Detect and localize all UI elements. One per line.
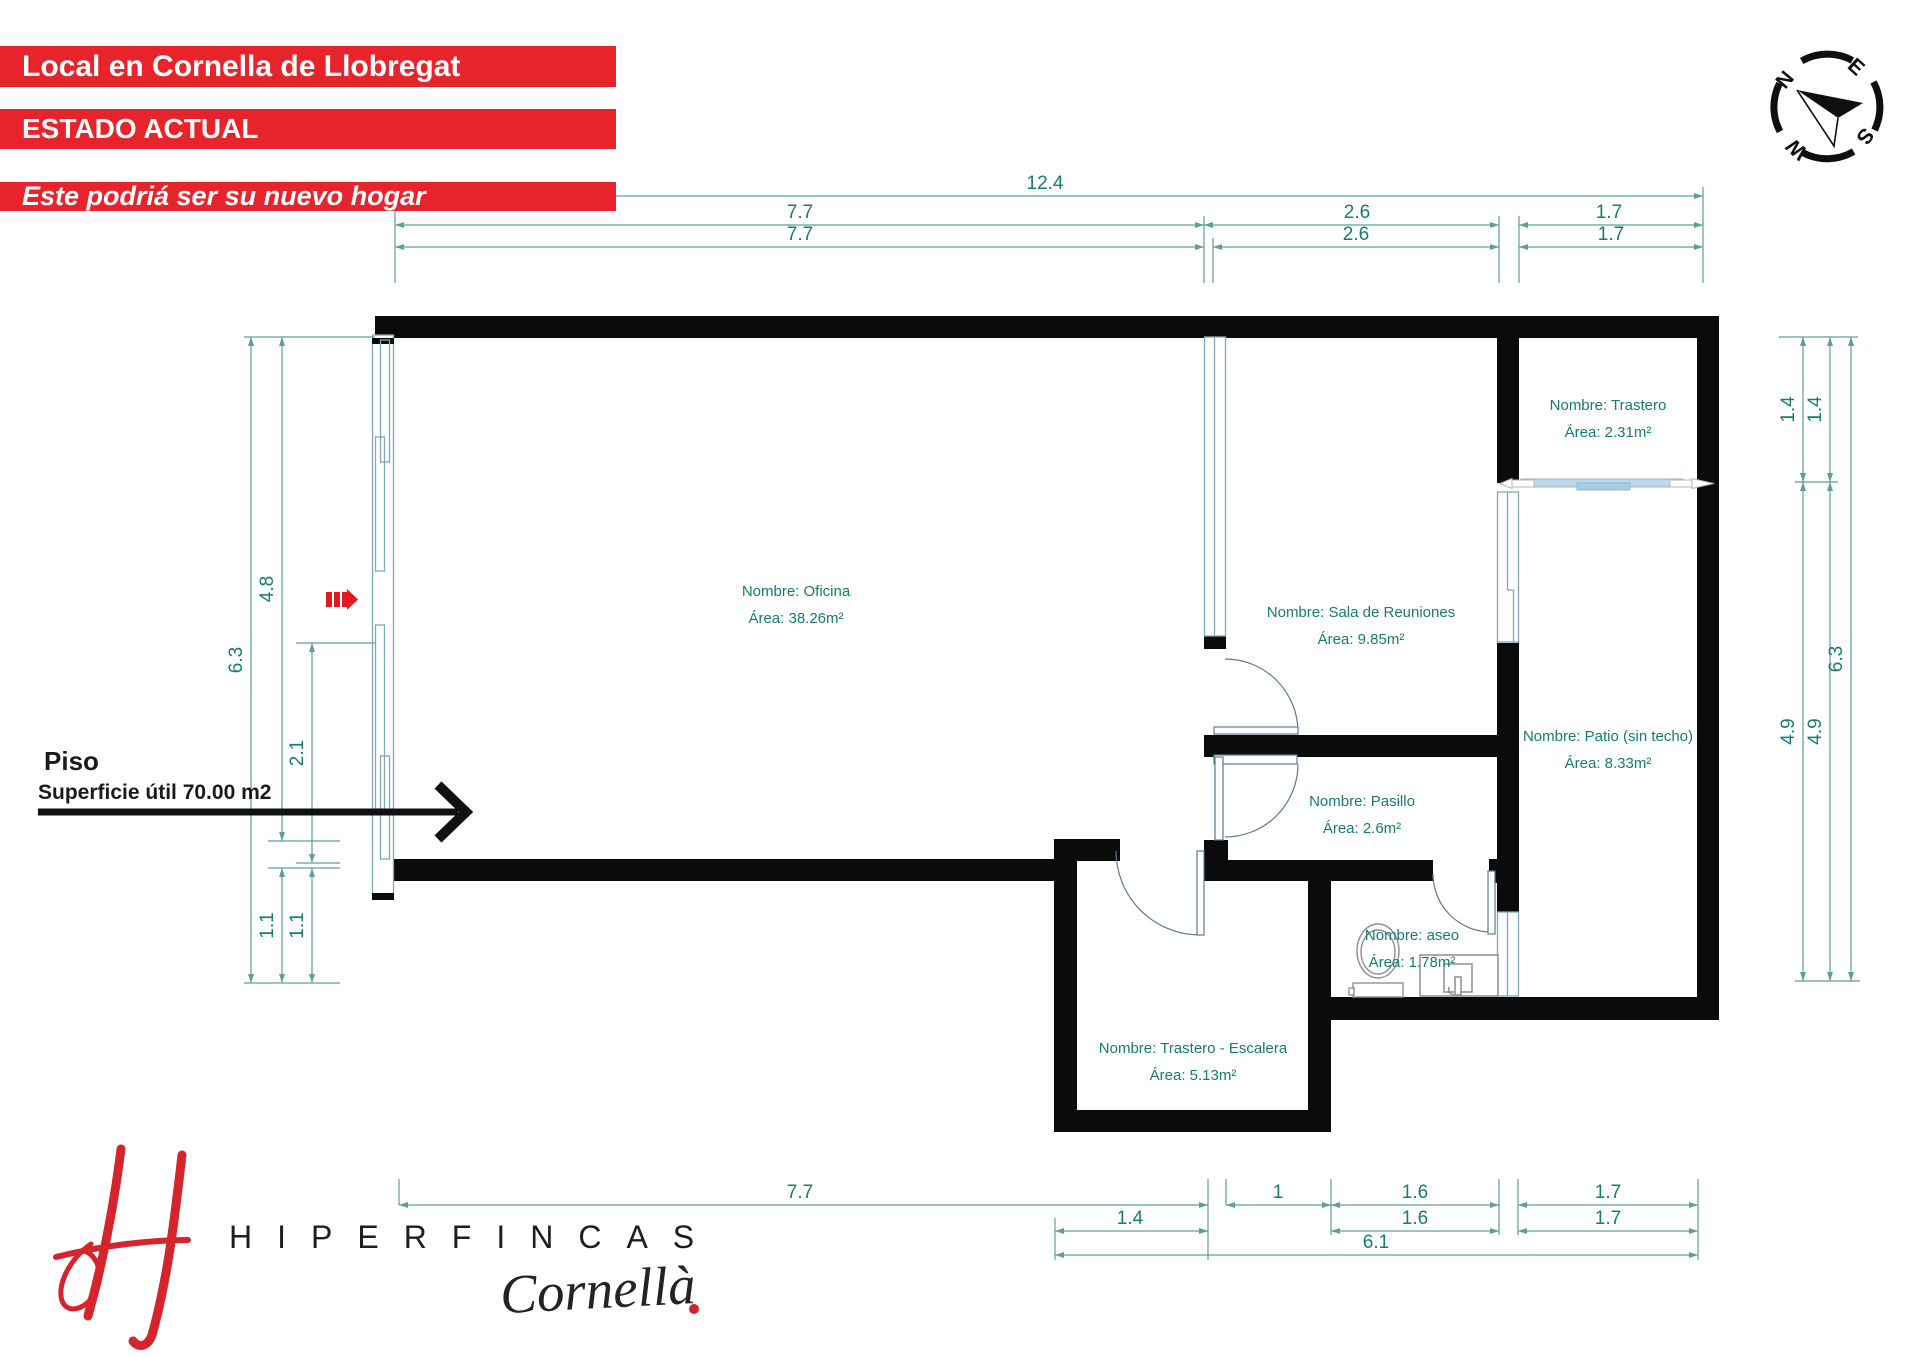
svg-text:7.7: 7.7 <box>787 202 813 223</box>
svg-text:Área: 1.78m²: Área: 1.78m² <box>1369 954 1456 971</box>
svg-text:4.9: 4.9 <box>1778 718 1799 744</box>
svg-text:Área: 5.13m²: Área: 5.13m² <box>1150 1067 1237 1084</box>
svg-text:7.7: 7.7 <box>787 1182 813 1203</box>
svg-text:Área: 2.6m²: Área: 2.6m² <box>1323 820 1401 837</box>
svg-text:Nombre: Pasillo: Nombre: Pasillo <box>1309 793 1415 810</box>
svg-text:2.6: 2.6 <box>1344 202 1370 223</box>
svg-text:1.7: 1.7 <box>1598 224 1624 245</box>
svg-text:1.7: 1.7 <box>1595 1208 1621 1229</box>
svg-text:1.1: 1.1 <box>287 912 308 938</box>
svg-text:HIPERFINCAS: HIPERFINCAS <box>229 1219 719 1255</box>
svg-text:4.8: 4.8 <box>257 576 278 602</box>
svg-text:1.7: 1.7 <box>1596 202 1622 223</box>
svg-text:Nombre: Patio (sin techo): Nombre: Patio (sin techo) <box>1523 728 1693 745</box>
svg-text:12.4: 12.4 <box>1027 173 1064 194</box>
svg-text:6.3: 6.3 <box>226 647 247 673</box>
svg-text:1: 1 <box>1273 1182 1284 1203</box>
svg-text:1.4: 1.4 <box>1805 396 1826 423</box>
svg-text:Nombre: Trastero: Nombre: Trastero <box>1550 397 1667 414</box>
svg-text:Área: 8.33m²: Área: 8.33m² <box>1565 755 1652 772</box>
svg-text:1.6: 1.6 <box>1402 1182 1428 1203</box>
svg-text:Nombre: Trastero - Escalera: Nombre: Trastero - Escalera <box>1099 1040 1288 1057</box>
svg-text:1.1: 1.1 <box>257 912 278 938</box>
svg-text:Nombre: Sala de Reuniones: Nombre: Sala de Reuniones <box>1267 604 1455 621</box>
svg-text:7.7: 7.7 <box>787 224 813 245</box>
svg-text:Área: 2.31m²: Área: 2.31m² <box>1565 424 1652 441</box>
svg-text:Nombre: aseo: Nombre: aseo <box>1365 927 1459 944</box>
svg-text:1.4: 1.4 <box>1117 1208 1144 1229</box>
svg-text:W: W <box>1782 134 1812 164</box>
svg-text:1.4: 1.4 <box>1778 396 1799 423</box>
svg-text:Área: 38.26m²: Área: 38.26m² <box>748 610 843 627</box>
svg-text:Área: 9.85m²: Área: 9.85m² <box>1318 631 1405 648</box>
svg-text:Cornellà: Cornellà <box>499 1254 697 1325</box>
svg-text:1.6: 1.6 <box>1402 1208 1428 1229</box>
svg-text:1.7: 1.7 <box>1595 1182 1621 1203</box>
svg-text:4.9: 4.9 <box>1805 718 1826 744</box>
svg-text:6.1: 6.1 <box>1363 1232 1389 1253</box>
svg-text:2.1: 2.1 <box>287 740 308 766</box>
svg-text:2.6: 2.6 <box>1343 224 1369 245</box>
svg-text:Nombre: Oficina: Nombre: Oficina <box>742 583 851 600</box>
svg-text:6.3: 6.3 <box>1826 646 1847 672</box>
